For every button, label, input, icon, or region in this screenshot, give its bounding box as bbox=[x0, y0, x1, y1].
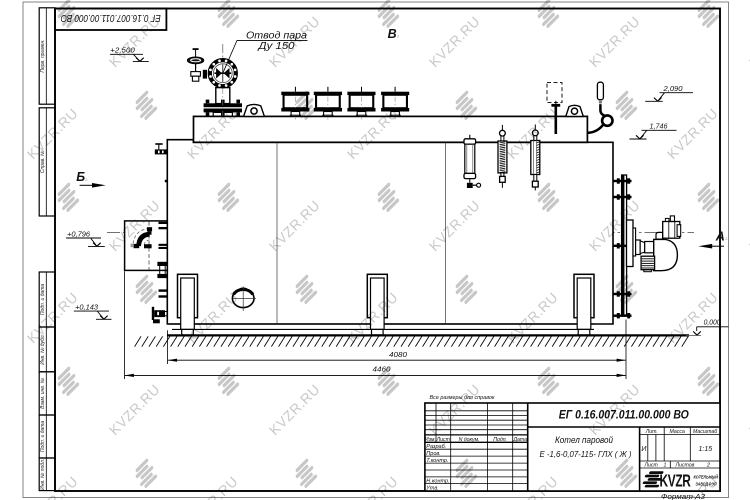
svg-text:Инв. № подл.: Инв. № подл. bbox=[40, 459, 46, 490]
svg-text:Утв.: Утв. bbox=[425, 485, 439, 491]
svg-text:1:15: 1:15 bbox=[698, 446, 712, 453]
svg-text:N докум.: N докум. bbox=[459, 437, 480, 443]
svg-text:Лит.: Лит. bbox=[645, 429, 658, 435]
svg-text:2: 2 bbox=[706, 463, 710, 469]
svg-text:Перв. примен.: Перв. примен. bbox=[40, 39, 46, 72]
svg-text:Листов: Листов bbox=[675, 463, 695, 469]
svg-text:Е -1,6-0,07-115- ГЛХ ( Ж ): Е -1,6-0,07-115- ГЛХ ( Ж ) bbox=[540, 449, 632, 459]
svg-text:Изм.: Изм. bbox=[425, 437, 436, 443]
svg-text:Подп.: Подп. bbox=[493, 437, 507, 443]
svg-text:КОТЕЛЬНЫЙ: КОТЕЛЬНЫЙ bbox=[694, 472, 719, 479]
svg-text:Б: Б bbox=[76, 170, 85, 184]
svg-text:А: А bbox=[715, 230, 725, 244]
svg-text:Подп. и дата: Подп. и дата bbox=[40, 284, 46, 316]
svg-text:ЗАВОД РЭП: ЗАВОД РЭП bbox=[696, 481, 718, 486]
svg-text:Лист: Лист bbox=[436, 437, 451, 443]
svg-text:0,000: 0,000 bbox=[704, 318, 722, 327]
svg-text:Н.контр.: Н.контр. bbox=[426, 478, 449, 484]
svg-text:Справ. №: Справ. № bbox=[40, 150, 46, 173]
svg-text:Дата: Дата bbox=[512, 437, 527, 443]
svg-text:1,746: 1,746 bbox=[650, 121, 669, 130]
svg-text:Разраб.: Разраб. bbox=[426, 444, 446, 450]
svg-text:Взам. инв. №: Взам. инв. № bbox=[40, 377, 46, 409]
svg-text:Инв. № дубл.: Инв. № дубл. bbox=[40, 334, 46, 365]
svg-text:Масштаб: Масштаб bbox=[693, 429, 718, 435]
svg-text:В: В bbox=[388, 27, 397, 41]
svg-text:4460: 4460 bbox=[373, 367, 391, 374]
svg-text:Котел паровой: Котел паровой bbox=[555, 435, 613, 445]
svg-text:Подп. и дата: Подп. и дата bbox=[40, 421, 46, 453]
svg-text:Пров.: Пров. bbox=[426, 451, 441, 457]
svg-text:+0,796: +0,796 bbox=[67, 230, 91, 239]
svg-text:+0,143: +0,143 bbox=[75, 303, 99, 312]
svg-text:Ду 150: Ду 150 bbox=[257, 41, 295, 52]
svg-text:Все размеры для справок: Все размеры для справок bbox=[430, 395, 495, 401]
svg-text:Масса: Масса bbox=[670, 429, 685, 435]
svg-text:Т.контр.: Т.контр. bbox=[426, 458, 448, 464]
svg-text:1: 1 bbox=[664, 463, 667, 469]
svg-text:ЕГ 0.16.007.011.00.000 ВО: ЕГ 0.16.007.011.00.000 ВО bbox=[559, 408, 689, 422]
svg-text:2,090: 2,090 bbox=[662, 84, 683, 93]
svg-text:ЕГ 0.16.007.011.00.000 ВО: ЕГ 0.16.007.011.00.000 ВО bbox=[61, 12, 161, 24]
svg-text:Лист: Лист bbox=[644, 463, 659, 469]
svg-text:KVZR: KVZR bbox=[660, 470, 692, 490]
svg-text:+2,500: +2,500 bbox=[110, 46, 135, 55]
svg-text:Формат А3: Формат А3 bbox=[661, 492, 705, 500]
svg-text:4080: 4080 bbox=[389, 352, 407, 359]
